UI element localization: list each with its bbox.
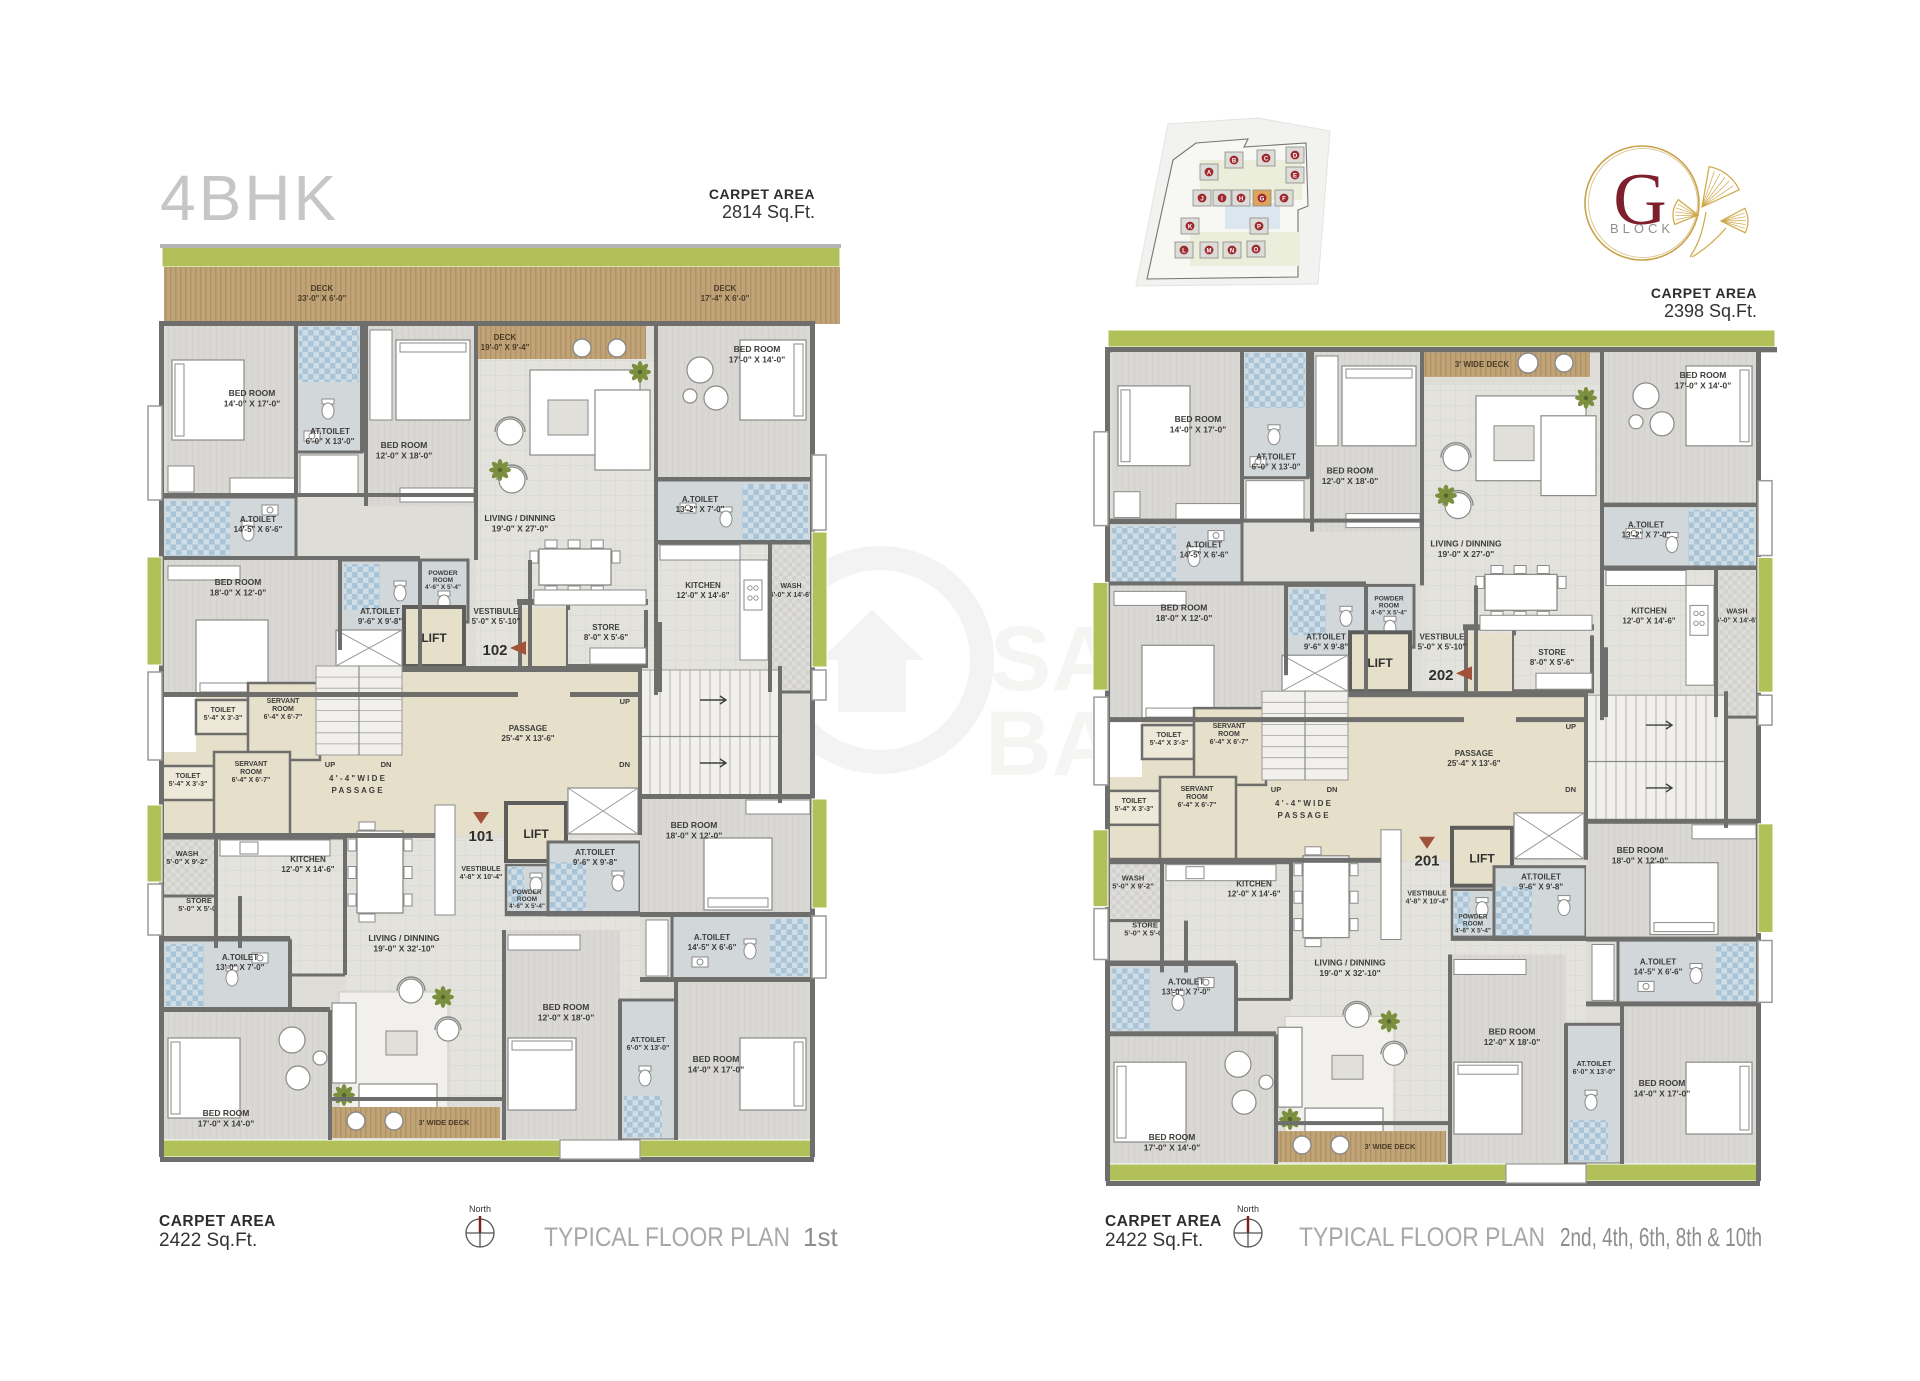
svg-text:12'-0" X 14'-6": 12'-0" X 14'-6" <box>676 591 729 600</box>
svg-text:4'-6" X 5'-4": 4'-6" X 5'-4" <box>509 903 545 910</box>
svg-text:18'-0" X 12'-0": 18'-0" X 12'-0" <box>666 831 723 841</box>
svg-text:102: 102 <box>482 642 507 659</box>
svg-text:17'-0" X 14'-0": 17'-0" X 14'-0" <box>198 1119 255 1129</box>
svg-text:DN: DN <box>381 760 392 769</box>
svg-text:12'-0" X 14'-6": 12'-0" X 14'-6" <box>1622 616 1675 625</box>
svg-text:201: 201 <box>1414 853 1439 870</box>
svg-text:P: P <box>1257 224 1261 230</box>
svg-text:14'-0" X 17'-0": 14'-0" X 17'-0" <box>1170 424 1227 434</box>
svg-text:AT.TOILET: AT.TOILET <box>1256 453 1296 462</box>
svg-text:5'-0" X 14'-6": 5'-0" X 14'-6" <box>770 592 813 599</box>
svg-text:J: J <box>1200 196 1203 202</box>
svg-text:ROOM: ROOM <box>272 706 294 713</box>
svg-text:UP: UP <box>1566 722 1576 731</box>
svg-text:4'-8" X 10'-4": 4'-8" X 10'-4" <box>460 874 503 881</box>
svg-text:STORE: STORE <box>1538 648 1566 657</box>
svg-text:6'-4" X 6'-7": 6'-4" X 6'-7" <box>1178 802 1217 809</box>
svg-text:STORE: STORE <box>592 623 620 632</box>
svg-text:A.TOILET: A.TOILET <box>240 515 276 524</box>
svg-text:UP: UP <box>1271 785 1281 794</box>
svg-text:202: 202 <box>1428 667 1453 684</box>
svg-text:POWDER: POWDER <box>428 570 458 577</box>
svg-text:AT.TOILET: AT.TOILET <box>1577 1061 1612 1068</box>
svg-text:BED ROOM: BED ROOM <box>693 1054 740 1064</box>
svg-text:4'-6" X 5'-4": 4'-6" X 5'-4" <box>425 584 461 591</box>
svg-text:12'-0" X 14'-6": 12'-0" X 14'-6" <box>281 865 334 874</box>
svg-text:13'-0" X 7'-0": 13'-0" X 7'-0" <box>216 963 265 972</box>
svg-text:TOILET: TOILET <box>176 773 201 780</box>
svg-text:12'-0" X 14'-6": 12'-0" X 14'-6" <box>1227 890 1280 899</box>
svg-text:ROOM: ROOM <box>1463 921 1483 928</box>
svg-text:O: O <box>1254 247 1259 253</box>
svg-text:TYPICAL FLOOR PLAN: TYPICAL FLOOR PLAN <box>1299 1222 1545 1252</box>
svg-text:LIFT: LIFT <box>1367 656 1393 670</box>
svg-text:BED ROOM: BED ROOM <box>215 577 262 587</box>
svg-text:5'-0" X 5'-10": 5'-0" X 5'-10" <box>472 617 521 626</box>
svg-text:BED ROOM: BED ROOM <box>1149 1132 1196 1142</box>
svg-text:18'-0" X 12'-0": 18'-0" X 12'-0" <box>1612 855 1669 865</box>
svg-text:DECK: DECK <box>714 284 737 293</box>
svg-text:25'-4" X 13'-6": 25'-4" X 13'-6" <box>501 734 554 743</box>
svg-text:5'-4" X 3'-3": 5'-4" X 3'-3" <box>169 781 208 788</box>
svg-text:5'-4" X 3'-3": 5'-4" X 3'-3" <box>204 715 243 722</box>
svg-text:G: G <box>1260 196 1265 202</box>
svg-text:VESTIBULE: VESTIBULE <box>1420 632 1466 641</box>
svg-text:LIVING / DINNING: LIVING / DINNING <box>1314 958 1386 968</box>
svg-text:BLOCK: BLOCK <box>1610 221 1674 236</box>
svg-text:A.TOILET: A.TOILET <box>1168 977 1204 986</box>
svg-text:A.TOILET: A.TOILET <box>682 495 718 504</box>
svg-text:17'-0" X 14'-0": 17'-0" X 14'-0" <box>1675 380 1732 390</box>
svg-text:LIFT: LIFT <box>523 827 549 841</box>
svg-text:2422 Sq.Ft.: 2422 Sq.Ft. <box>1105 1230 1203 1251</box>
svg-text:AT.TOILET: AT.TOILET <box>360 607 400 616</box>
svg-text:VESTIBULE: VESTIBULE <box>461 866 501 873</box>
svg-text:KITCHEN: KITCHEN <box>1236 880 1272 889</box>
svg-text:E: E <box>1293 173 1297 179</box>
svg-text:18'-0" X 12'-0": 18'-0" X 12'-0" <box>210 588 267 598</box>
svg-text:2422 Sq.Ft.: 2422 Sq.Ft. <box>159 1230 257 1251</box>
svg-text:4'-6" X 5'-4": 4'-6" X 5'-4" <box>1455 928 1491 935</box>
svg-text:BED ROOM: BED ROOM <box>229 388 276 398</box>
svg-text:LIFT: LIFT <box>1469 852 1495 866</box>
svg-text:A.TOILET: A.TOILET <box>1628 521 1664 530</box>
svg-text:5'-4" X 3'-3": 5'-4" X 3'-3" <box>1115 806 1154 813</box>
svg-text:LIFT: LIFT <box>421 631 447 645</box>
svg-text:BED ROOM: BED ROOM <box>1489 1026 1536 1036</box>
svg-text:6'-4" X 6'-7": 6'-4" X 6'-7" <box>1210 739 1249 746</box>
svg-text:North: North <box>1237 1204 1259 1214</box>
svg-text:M: M <box>1207 248 1212 254</box>
svg-text:PASSAGE: PASSAGE <box>509 724 548 733</box>
svg-text:5'-0" X 9'-2": 5'-0" X 9'-2" <box>1112 882 1154 891</box>
svg-text:14'-5" X 6'-6": 14'-5" X 6'-6" <box>234 525 283 534</box>
svg-text:12'-0" X 18'-0": 12'-0" X 18'-0" <box>538 1013 595 1023</box>
svg-text:3' WIDE DECK: 3' WIDE DECK <box>1365 1142 1417 1151</box>
svg-text:14'-5" X 6'-6": 14'-5" X 6'-6" <box>1634 968 1683 977</box>
svg-text:N: N <box>1230 248 1234 254</box>
svg-text:BED ROOM: BED ROOM <box>1680 370 1727 380</box>
svg-text:PASSAGE: PASSAGE <box>1455 749 1494 758</box>
svg-text:F: F <box>1282 196 1286 202</box>
svg-text:BED ROOM: BED ROOM <box>1161 602 1208 612</box>
svg-text:ROOM: ROOM <box>1186 794 1208 801</box>
svg-text:TOILET: TOILET <box>211 707 236 714</box>
svg-text:6'-0" X 13'-0": 6'-0" X 13'-0" <box>306 437 355 446</box>
svg-text:BED ROOM: BED ROOM <box>734 344 781 354</box>
svg-text:19'-0" X 27'-0": 19'-0" X 27'-0" <box>1438 549 1495 559</box>
svg-text:2398 Sq.Ft.: 2398 Sq.Ft. <box>1664 301 1757 321</box>
svg-text:DN: DN <box>1327 785 1338 794</box>
svg-text:17'-0" X 14'-0": 17'-0" X 14'-0" <box>729 355 786 365</box>
svg-text:19'-0" X 9'-4": 19'-0" X 9'-4" <box>481 343 530 352</box>
svg-text:BED ROOM: BED ROOM <box>1175 414 1222 424</box>
svg-text:POWDER: POWDER <box>1458 914 1488 921</box>
svg-text:SERVANT: SERVANT <box>1213 723 1247 730</box>
svg-text:DECK: DECK <box>311 284 334 293</box>
svg-text:VESTIBULE: VESTIBULE <box>1407 891 1447 898</box>
svg-text:BED ROOM: BED ROOM <box>1639 1078 1686 1088</box>
svg-text:CARPET AREA: CARPET AREA <box>1105 1213 1222 1230</box>
svg-text:D: D <box>1293 153 1298 159</box>
svg-text:TOILET: TOILET <box>1157 732 1182 739</box>
svg-text:9'-6" X 9'-8": 9'-6" X 9'-8" <box>358 617 403 626</box>
svg-text:17'-0" X 14'-0": 17'-0" X 14'-0" <box>1144 1143 1201 1153</box>
svg-text:6'-0" X 13'-0": 6'-0" X 13'-0" <box>627 1045 670 1052</box>
svg-text:4BHK: 4BHK <box>160 162 339 234</box>
svg-text:L: L <box>1182 248 1186 254</box>
svg-text:DN: DN <box>1565 785 1576 794</box>
svg-text:DN: DN <box>619 760 630 769</box>
svg-text:UP: UP <box>620 697 630 706</box>
svg-text:WASH: WASH <box>1727 608 1748 615</box>
svg-text:12'-0" X 18'-0": 12'-0" X 18'-0" <box>376 451 433 461</box>
svg-text:A.TOILET: A.TOILET <box>694 933 730 942</box>
svg-text:BED ROOM: BED ROOM <box>671 820 718 830</box>
svg-text:AT.TOILET: AT.TOILET <box>631 1037 666 1044</box>
svg-text:POWDER: POWDER <box>512 889 542 896</box>
svg-text:5'-0" X 9'-2": 5'-0" X 9'-2" <box>166 857 208 866</box>
svg-text:25'-4" X 13'-6": 25'-4" X 13'-6" <box>1447 759 1500 768</box>
svg-text:13'-0" X 7'-0": 13'-0" X 7'-0" <box>1162 987 1211 996</box>
svg-text:A.TOILET: A.TOILET <box>1186 541 1222 550</box>
svg-text:9'-6" X 9'-8": 9'-6" X 9'-8" <box>1519 883 1564 892</box>
svg-text:KITCHEN: KITCHEN <box>1631 606 1667 615</box>
svg-text:BED ROOM: BED ROOM <box>381 440 428 450</box>
svg-text:101: 101 <box>468 828 493 845</box>
svg-text:UP: UP <box>325 760 335 769</box>
svg-text:14'-5" X 6'-6": 14'-5" X 6'-6" <box>688 943 737 952</box>
svg-text:SERVANT: SERVANT <box>1181 786 1215 793</box>
svg-text:C: C <box>1264 156 1269 162</box>
svg-text:6'-4" X 6'-7": 6'-4" X 6'-7" <box>232 777 271 784</box>
svg-text:5'-0" X 5'-0": 5'-0" X 5'-0" <box>178 904 220 913</box>
svg-text:BED ROOM: BED ROOM <box>1327 466 1374 476</box>
svg-text:ROOM: ROOM <box>517 896 537 903</box>
svg-text:BED ROOM: BED ROOM <box>543 1002 590 1012</box>
svg-text:DECK: DECK <box>494 333 517 342</box>
svg-text:POWDER: POWDER <box>1374 595 1404 602</box>
svg-text:2nd, 4th, 6th, 8th & 10th: 2nd, 4th, 6th, 8th & 10th <box>1560 1222 1762 1252</box>
svg-text:13'-2" X 7'-0": 13'-2" X 7'-0" <box>676 505 725 514</box>
svg-text:14'-0" X 17'-0": 14'-0" X 17'-0" <box>688 1065 745 1075</box>
svg-text:North: North <box>469 1204 491 1214</box>
svg-text:5'-0" X 5'-0": 5'-0" X 5'-0" <box>1124 929 1166 938</box>
svg-text:19'-0" X 27'-0": 19'-0" X 27'-0" <box>492 524 549 534</box>
svg-text:ROOM: ROOM <box>433 577 453 584</box>
svg-text:AT.TOILET: AT.TOILET <box>310 427 350 436</box>
svg-text:H: H <box>1239 196 1243 202</box>
svg-text:SERVANT: SERVANT <box>267 698 301 705</box>
svg-text:17'-4" X 6'-0": 17'-4" X 6'-0" <box>701 294 750 303</box>
svg-text:5'-4" X 3'-3": 5'-4" X 3'-3" <box>1150 740 1189 747</box>
svg-text:WASH: WASH <box>781 583 802 590</box>
svg-text:ROOM: ROOM <box>240 769 262 776</box>
svg-text:4'-6" X 5'-4": 4'-6" X 5'-4" <box>1371 609 1407 616</box>
svg-text:P A S S A G E: P A S S A G E <box>331 786 383 795</box>
svg-text:6'-0" X 13'-0": 6'-0" X 13'-0" <box>1573 1069 1616 1076</box>
svg-text:12'-0" X 18'-0": 12'-0" X 18'-0" <box>1322 476 1379 486</box>
svg-text:AT.TOILET: AT.TOILET <box>1306 632 1346 641</box>
svg-text:8'-0" X 5'-6": 8'-0" X 5'-6" <box>584 633 629 642</box>
svg-text:TOILET: TOILET <box>1122 798 1147 805</box>
svg-text:5'-0" X 14'-6": 5'-0" X 14'-6" <box>1716 617 1759 624</box>
svg-text:TYPICAL FLOOR PLAN: TYPICAL FLOOR PLAN <box>544 1222 790 1252</box>
svg-text:19'-0" X 32'-10": 19'-0" X 32'-10" <box>373 944 434 954</box>
svg-text:ROOM: ROOM <box>1218 731 1240 738</box>
svg-text:2814 Sq.Ft.: 2814 Sq.Ft. <box>722 202 815 222</box>
svg-text:ROOM: ROOM <box>1379 602 1399 609</box>
svg-text:12'-0" X 18'-0": 12'-0" X 18'-0" <box>1484 1037 1541 1047</box>
svg-text:13'-2" X 7'-0": 13'-2" X 7'-0" <box>1622 531 1671 540</box>
svg-text:3' WIDE DECK: 3' WIDE DECK <box>1455 360 1510 369</box>
svg-text:4'-8" X 10'-4": 4'-8" X 10'-4" <box>1406 899 1449 906</box>
svg-text:8'-0" X 5'-6": 8'-0" X 5'-6" <box>1530 658 1575 667</box>
svg-text:A: A <box>1207 170 1212 176</box>
svg-text:B: B <box>1232 158 1237 164</box>
svg-text:BED ROOM: BED ROOM <box>203 1108 250 1118</box>
svg-text:CARPET AREA: CARPET AREA <box>159 1213 276 1230</box>
svg-text:KITCHEN: KITCHEN <box>685 581 721 590</box>
svg-text:A.TOILET: A.TOILET <box>222 953 258 962</box>
svg-text:CARPET AREA: CARPET AREA <box>709 186 815 202</box>
svg-text:4 ' - 4 " W I D E: 4 ' - 4 " W I D E <box>1275 799 1332 808</box>
svg-text:6'-0" X 13'-0": 6'-0" X 13'-0" <box>1252 463 1301 472</box>
svg-text:9'-6" X 9'-8": 9'-6" X 9'-8" <box>573 858 618 867</box>
svg-text:4 ' - 4 " W I D E: 4 ' - 4 " W I D E <box>329 774 386 783</box>
svg-text:19'-0" X 32'-10": 19'-0" X 32'-10" <box>1319 968 1380 978</box>
svg-text:K: K <box>1188 224 1193 230</box>
svg-text:SERVANT: SERVANT <box>235 761 269 768</box>
svg-text:9'-6" X 9'-8": 9'-6" X 9'-8" <box>1304 642 1349 651</box>
svg-text:P A S S A G E: P A S S A G E <box>1277 811 1329 820</box>
svg-text:18'-0" X 12'-0": 18'-0" X 12'-0" <box>1156 613 1213 623</box>
svg-text:3' WIDE DECK: 3' WIDE DECK <box>419 1118 471 1127</box>
svg-text:CARPET AREA: CARPET AREA <box>1651 285 1757 301</box>
svg-text:33'-0" X 6'-0": 33'-0" X 6'-0" <box>298 294 347 303</box>
svg-text:AT.TOILET: AT.TOILET <box>575 848 615 857</box>
svg-text:KITCHEN: KITCHEN <box>290 855 326 864</box>
svg-text:6'-4" X 6'-7": 6'-4" X 6'-7" <box>264 714 303 721</box>
svg-text:BED ROOM: BED ROOM <box>1617 845 1664 855</box>
svg-text:VESTIBULE: VESTIBULE <box>474 607 520 616</box>
svg-text:LIVING / DINNING: LIVING / DINNING <box>1430 539 1502 549</box>
svg-text:14'-5" X 6'-6": 14'-5" X 6'-6" <box>1180 551 1229 560</box>
svg-text:14'-0" X 17'-0": 14'-0" X 17'-0" <box>224 399 281 409</box>
svg-text:AT.TOILET: AT.TOILET <box>1521 873 1561 882</box>
svg-text:5'-0" X 5'-10": 5'-0" X 5'-10" <box>1418 642 1467 651</box>
svg-text:A.TOILET: A.TOILET <box>1640 958 1676 967</box>
svg-text:1st: 1st <box>803 1222 838 1252</box>
svg-text:14'-0" X 17'-0": 14'-0" X 17'-0" <box>1634 1089 1691 1099</box>
svg-text:LIVING / DINNING: LIVING / DINNING <box>368 933 440 943</box>
svg-text:LIVING / DINNING: LIVING / DINNING <box>484 513 556 523</box>
